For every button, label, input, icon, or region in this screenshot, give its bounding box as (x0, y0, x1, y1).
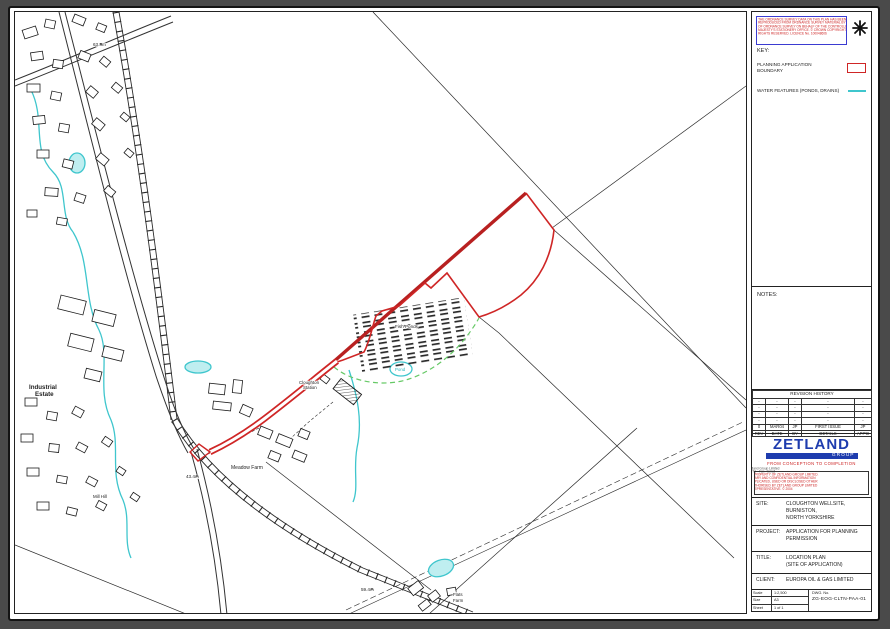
notes-section: NOTES: (752, 286, 871, 390)
drawing-page: { "colors": { "boundary_red": "#cf2626",… (0, 0, 890, 629)
os-notice-line: RIGHTS RESERVED. LICENCE No. 100048606 (758, 32, 847, 36)
location-plan-map: Industrial Estate Meadow Farm Cloughton … (15, 12, 746, 613)
key-boundary-label: BOUNDARY (757, 68, 812, 74)
brand-group-bar: GROUP (766, 453, 858, 459)
size-row: Size A3 (752, 597, 808, 604)
os-copyright-notice: THE ORDNANCE SURVEY DATA ON THIS PLAN HA… (756, 16, 847, 45)
scale-size-sheet-table: Scale 1:2,500 Size A3 Sheet 1 of 1 (752, 590, 809, 611)
size-label: Size (752, 597, 772, 603)
pond-label: Pond (395, 367, 406, 372)
flats-farm-label: Farm (453, 598, 464, 603)
project-value: APPLICATION FOR PLANNING (786, 529, 858, 536)
roads (15, 12, 227, 613)
scale-label: Scale (752, 590, 772, 596)
client-label: CLIENT: (756, 577, 786, 589)
site-field: SITE: CLOUGHTON WELLSITE, BURNISTON, NOR… (752, 498, 871, 526)
scale-row: Scale 1:2,500 (752, 590, 808, 597)
client-value: EUROPA OIL & GAS LIMITED (786, 577, 854, 584)
map-frame: Industrial Estate Meadow Farm Cloughton … (14, 11, 747, 614)
flats-farm-label: Flats (453, 592, 463, 597)
fish-ponds-label: Fish Ponds (395, 324, 419, 329)
size-value: A3 (772, 597, 779, 603)
site-value: BURNISTON, (786, 508, 845, 515)
dwg-value: ZG-EOG-CLTN-PAA-01 (812, 597, 871, 602)
industrial-estate-label: Estate (35, 391, 54, 398)
key-item-boundary: PLANNING APPLICATION BOUNDARY (757, 62, 866, 73)
title-value: LOCATION PLAN (786, 555, 843, 562)
key-section: THE ORDNANCE SURVEY DATA ON THIS PLAN HA… (752, 12, 871, 286)
key-item-water: WATER FEATURES (PONDS, DRAINS) (757, 88, 866, 94)
industrial-estate-label: Industrial (29, 384, 57, 391)
notes-title: NOTES: (757, 292, 777, 298)
sheet-label: Sheet (752, 605, 772, 611)
title-label: TITLE: (756, 555, 786, 573)
footer-block: Scale 1:2,500 Size A3 Sheet 1 of 1 DWG. … (752, 590, 871, 611)
revision-table: REVISION HISTORY ----- ----- ----- -----… (752, 390, 872, 437)
site-value: CLOUGHTON WELLSITE, (786, 501, 845, 508)
brand-section: ZETLAND GROUP FROM CONCEPTION TO COMPLET… (752, 434, 871, 498)
brand-tagline: FROM CONCEPTION TO COMPLETION (752, 461, 871, 466)
key-title: KEY: (757, 48, 769, 54)
north-star-icon (852, 20, 868, 41)
sheet-row: Sheet 1 of 1 (752, 605, 808, 611)
contact-line: Zetland Group Limited (752, 467, 823, 471)
site-label: SITE: (756, 501, 786, 525)
scale-value: 1:2,500 (772, 590, 787, 596)
brand-logo: ZETLAND (752, 437, 871, 452)
project-field: PROJECT: APPLICATION FOR PLANNING PERMIS… (752, 526, 871, 552)
revision-title: REVISION HISTORY (753, 391, 872, 399)
title-block: THE ORDNANCE SURVEY DATA ON THIS PLAN HA… (751, 11, 872, 612)
client-field: CLIENT: EUROPA OIL & GAS LIMITED (752, 574, 871, 590)
drawing-sheet: Industrial Estate Meadow Farm Cloughton … (8, 6, 880, 621)
project-label: PROJECT: (756, 529, 786, 551)
boundary-swatch (847, 63, 866, 73)
planning-boundary (190, 193, 554, 461)
brand-disclaimer: THIS DOCUMENT IS THE PROPERTY OF ZETLAND… (754, 471, 869, 495)
project-value: PERMISSION (786, 536, 858, 543)
spot-height-dots (100, 43, 373, 590)
mill-hill-label: Mill Hill (93, 494, 107, 499)
water-swatch (848, 90, 866, 92)
revision-history: REVISION HISTORY ----- ----- ----- -----… (752, 390, 871, 434)
station-label: Station (303, 385, 317, 390)
title-value: (SITE OF APPLICATION) (786, 562, 843, 569)
dwg-number: DWG. No. ZG-EOG-CLTN-PAA-01 (809, 590, 871, 611)
meadow-farm-label: Meadow Farm (231, 465, 263, 471)
dwg-label: DWG. No. (812, 591, 871, 595)
title-field: TITLE: LOCATION PLAN (SITE OF APPLICATIO… (752, 552, 871, 574)
key-water-label: WATER FEATURES (PONDS, DRAINS) (757, 88, 839, 94)
disclaimer-line: OR ITS REPRESENTATIVE. © 2004 (754, 488, 823, 492)
sheet-value: 1 of 1 (772, 605, 784, 611)
spot-height-label: 63.8m (93, 42, 106, 47)
key-boundary-label: PLANNING APPLICATION (757, 62, 812, 68)
site-value: NORTH YORKSHIRE (786, 515, 845, 522)
